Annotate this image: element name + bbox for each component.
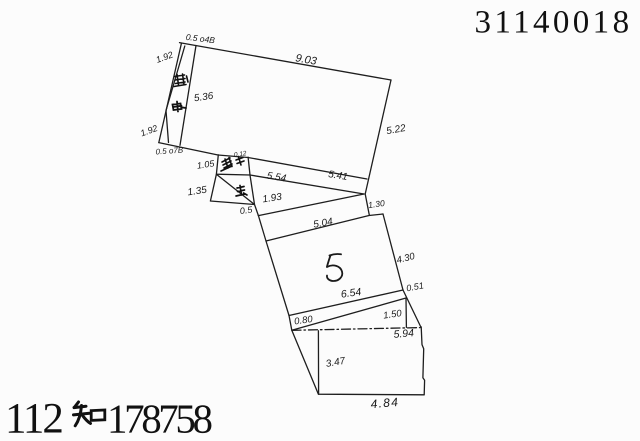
svg-text:9.03: 9.03 xyxy=(294,52,318,68)
svg-text:1.05: 1.05 xyxy=(196,158,216,170)
svg-text:0.51: 0.51 xyxy=(405,280,424,293)
svg-text:3.47: 3.47 xyxy=(325,356,347,370)
svg-text:1.92: 1.92 xyxy=(139,123,159,138)
svg-text:5.94: 5.94 xyxy=(393,327,415,341)
svg-text:5.22: 5.22 xyxy=(386,123,408,137)
svg-text:5.54: 5.54 xyxy=(266,171,287,185)
svg-text:112: 112 xyxy=(5,396,62,441)
svg-text:6.54: 6.54 xyxy=(340,286,362,301)
svg-text:1.92: 1.92 xyxy=(155,49,175,64)
svg-text:1.50: 1.50 xyxy=(383,308,404,322)
svg-text:1.30: 1.30 xyxy=(367,198,385,210)
svg-text:0.5: 0.5 xyxy=(239,204,254,216)
svg-text:31140018: 31140018 xyxy=(475,5,633,41)
svg-text:1.35: 1.35 xyxy=(187,185,208,199)
svg-text:5.41: 5.41 xyxy=(327,169,348,183)
svg-text:0.5 o7B: 0.5 o7B xyxy=(155,146,184,157)
svg-text:1.93: 1.93 xyxy=(262,192,283,206)
svg-text:5.36: 5.36 xyxy=(193,91,214,105)
svg-text:5.04: 5.04 xyxy=(313,216,335,230)
svg-text:4.84: 4.84 xyxy=(370,395,400,411)
svg-text:0.5 o4B: 0.5 o4B xyxy=(185,32,216,46)
svg-text:4.30: 4.30 xyxy=(395,251,416,266)
svg-text:178758: 178758 xyxy=(107,396,212,441)
